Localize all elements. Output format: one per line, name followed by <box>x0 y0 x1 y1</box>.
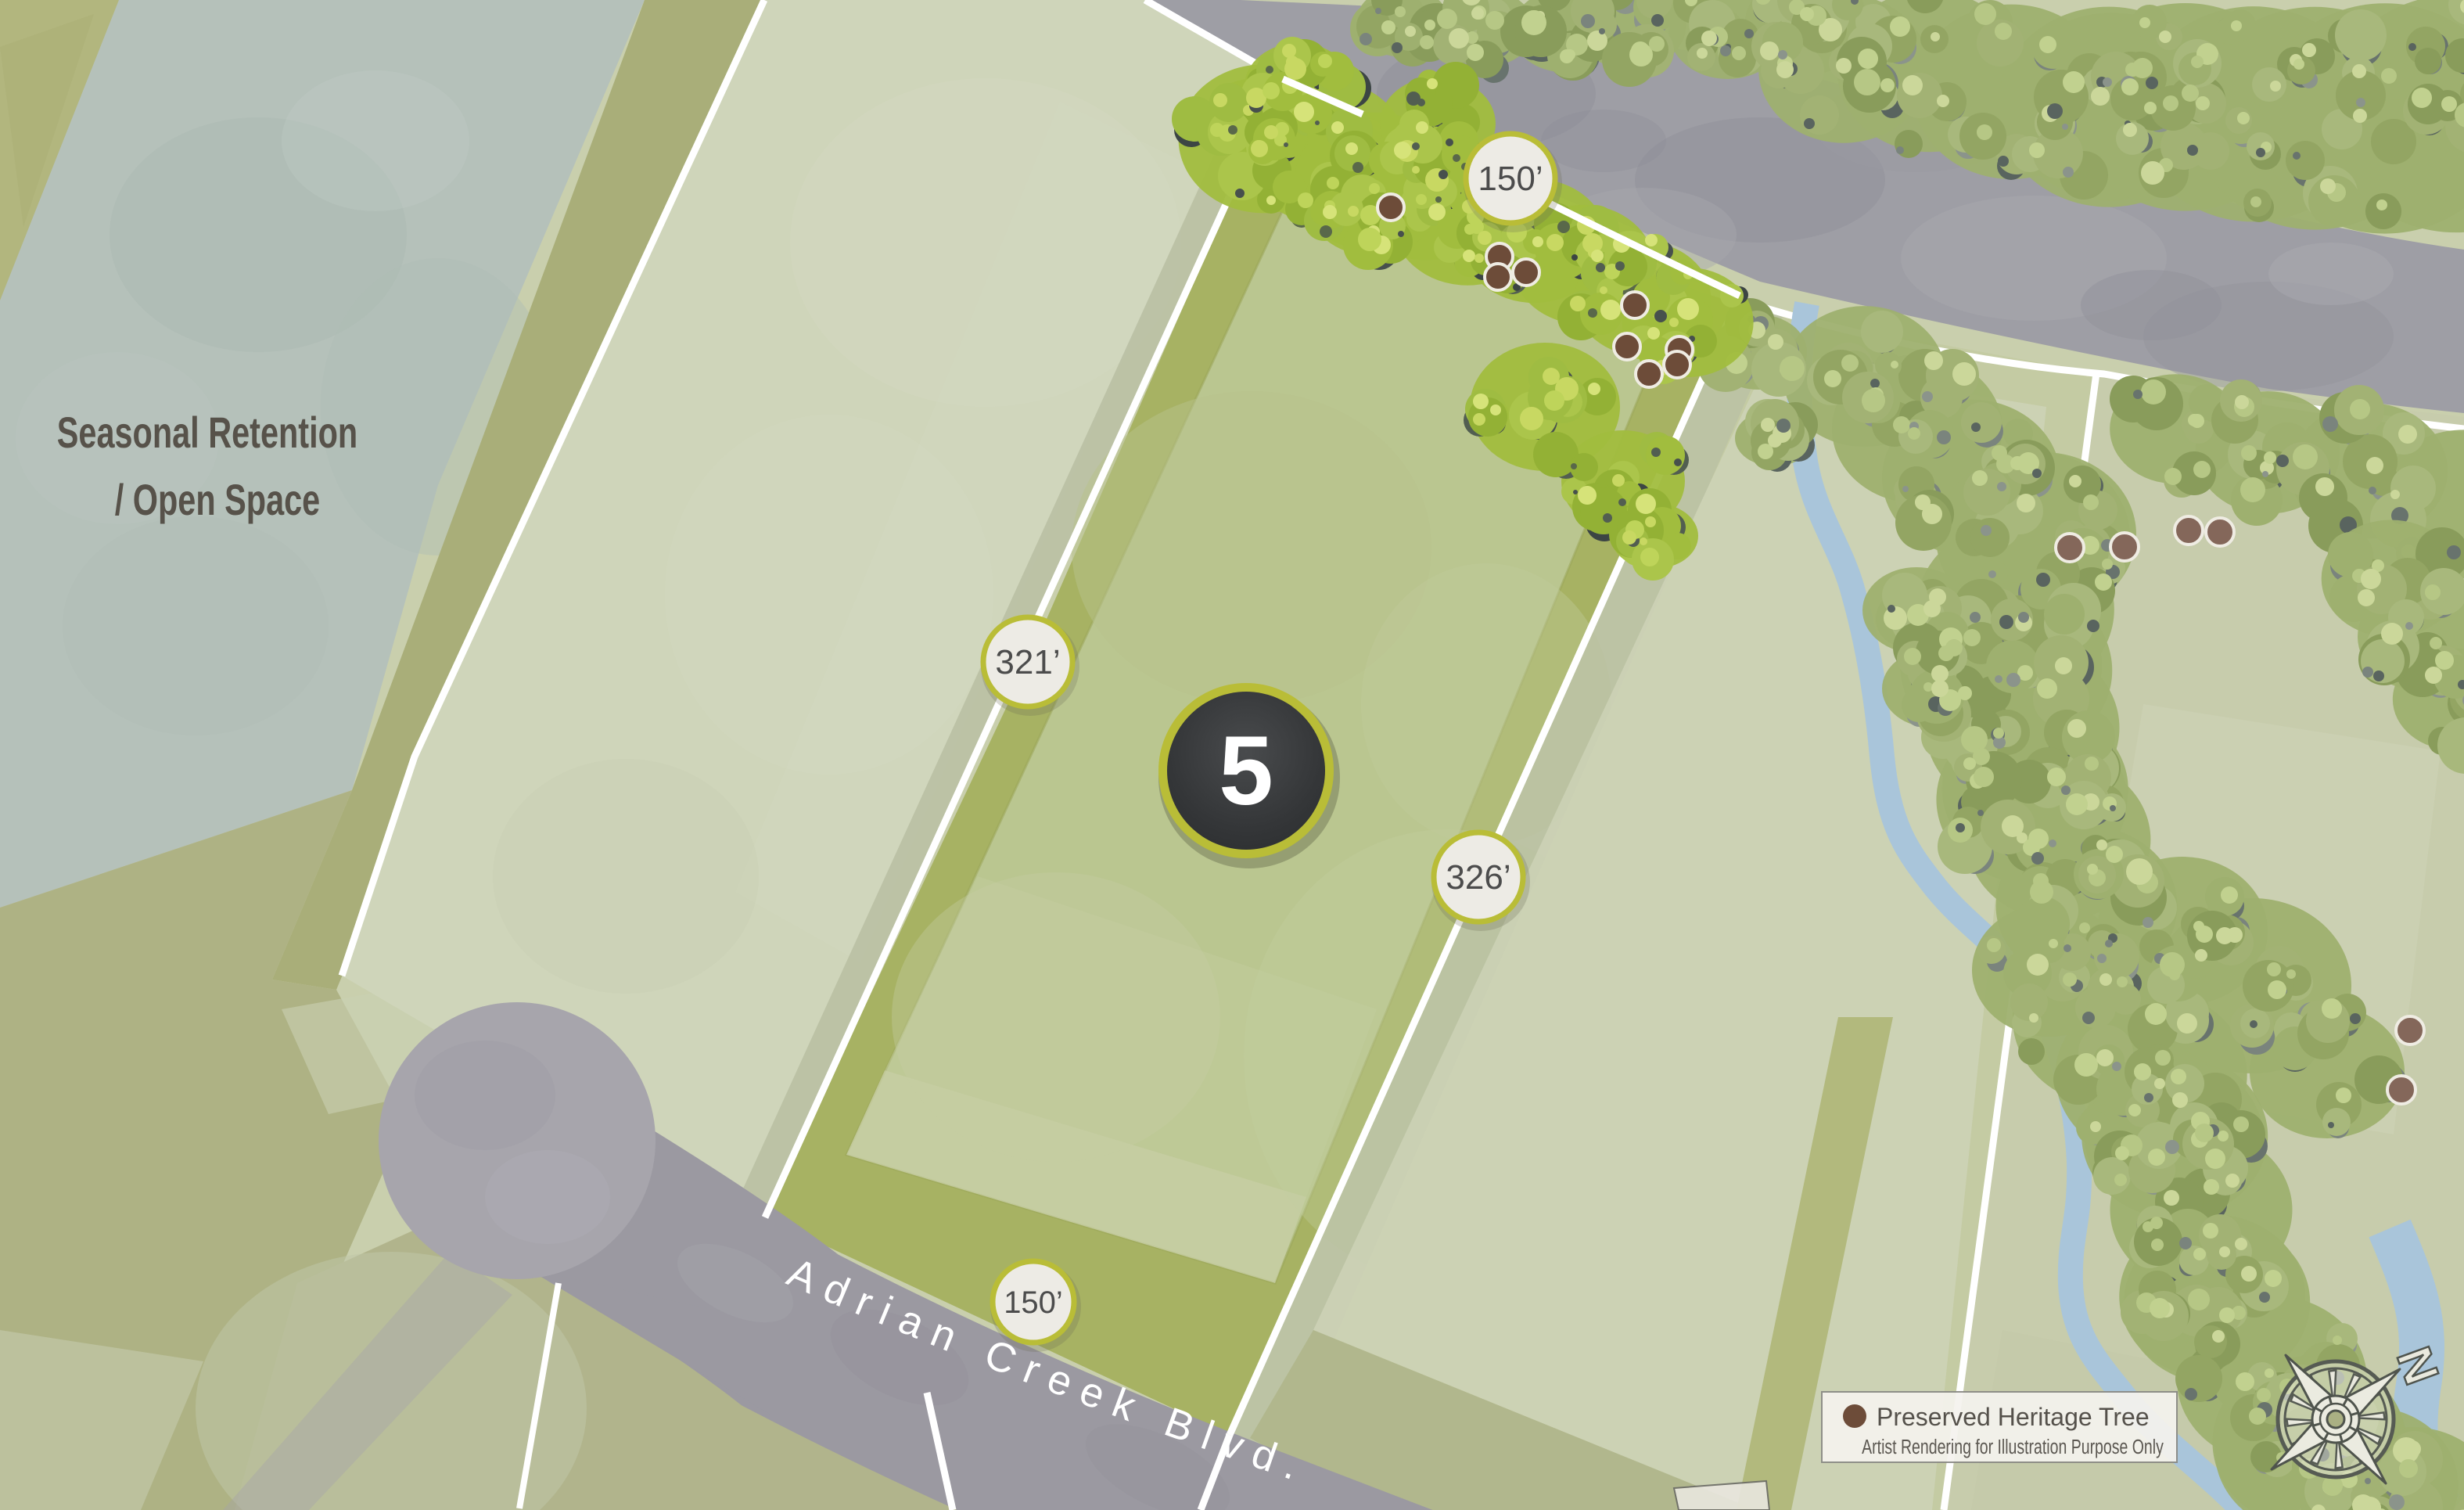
svg-text:5: 5 <box>1219 717 1273 825</box>
svg-text:150’: 150’ <box>1478 160 1543 198</box>
svg-text:/ Open Space: / Open Space <box>115 476 320 525</box>
svg-text:Preserved Heritage Tree: Preserved Heritage Tree <box>1877 1403 2150 1431</box>
svg-text:Artist Rendering for Illustrat: Artist Rendering for Illustration Purpos… <box>1862 1435 2164 1458</box>
svg-text:321’: 321’ <box>995 643 1060 681</box>
svg-text:Seasonal Retention: Seasonal Retention <box>57 408 357 458</box>
svg-text:150’: 150’ <box>1004 1285 1063 1320</box>
svg-text:326’: 326’ <box>1446 858 1510 897</box>
